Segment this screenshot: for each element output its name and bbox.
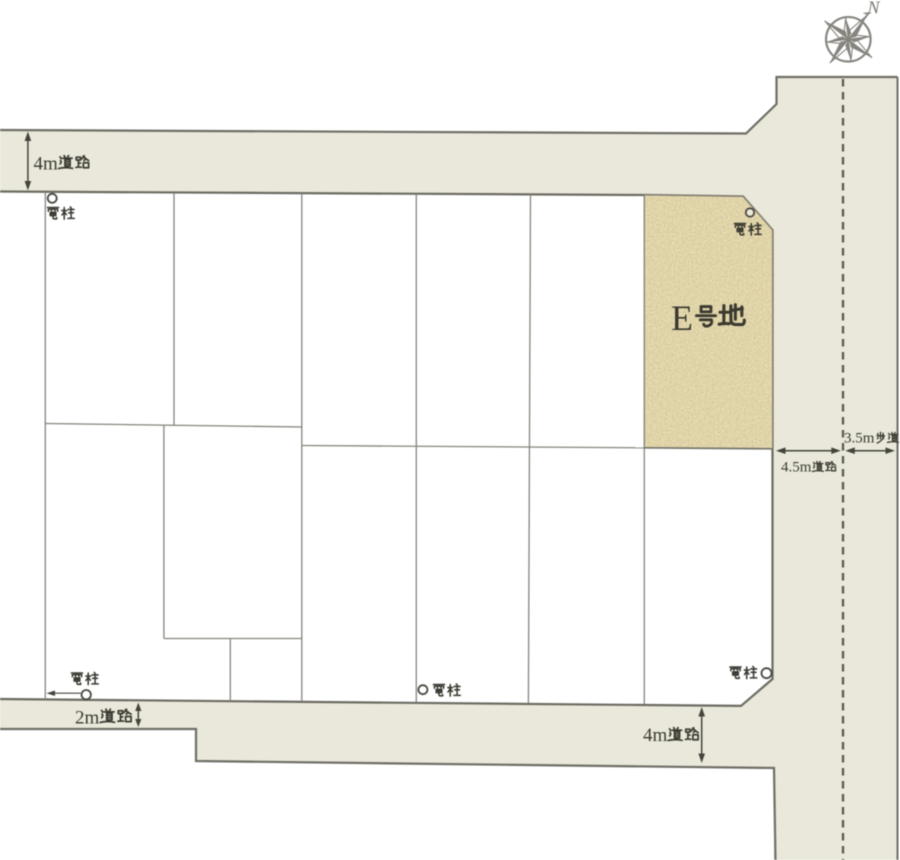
svg-text:4.5m: 4.5m xyxy=(781,460,812,476)
svg-text:2m: 2m xyxy=(75,708,100,729)
svg-text:3.5m: 3.5m xyxy=(844,431,875,447)
svg-text:4m: 4m xyxy=(34,154,59,175)
svg-text:4m: 4m xyxy=(643,725,668,746)
svg-text:N: N xyxy=(867,0,881,18)
svg-text:E: E xyxy=(671,298,693,338)
